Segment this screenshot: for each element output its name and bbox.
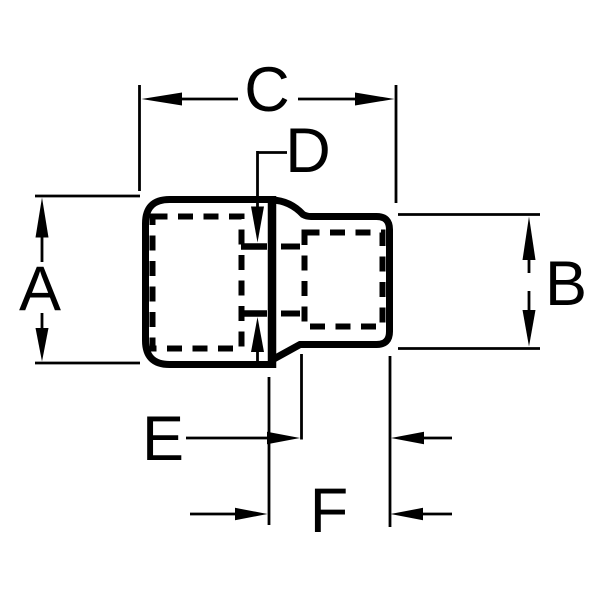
arrow-left-icon (391, 432, 424, 444)
arrow-down-icon (251, 207, 264, 243)
arrow-right-icon (355, 93, 395, 106)
large-end-outline (146, 200, 273, 365)
dimension-label-a: A (19, 254, 61, 324)
large-end-bore-dashed (153, 217, 242, 349)
arrow-up-icon (523, 217, 536, 261)
arrow-left-icon (391, 508, 424, 520)
arrow-down-icon (36, 328, 49, 362)
dimension-label-e: E (142, 404, 184, 474)
arrow-left-icon (142, 93, 183, 106)
arrow-down-icon (523, 310, 536, 347)
small-end-bore-dashed (305, 233, 383, 327)
socket-body (146, 196, 390, 368)
dimension-label-b: B (545, 249, 587, 319)
dimension-label-c: C (244, 55, 290, 125)
arrow-right-icon (235, 508, 268, 520)
dimension-f: F (190, 476, 452, 546)
arrow-up-icon (36, 198, 49, 238)
dimension-drawing: A B C D (0, 0, 600, 600)
dimension-e: E (142, 404, 452, 474)
dimension-label-f: F (310, 476, 348, 546)
dimension-a: A (19, 196, 140, 363)
arrow-right-icon (267, 432, 300, 444)
small-end-outline (271, 200, 390, 361)
dimension-b: B (398, 215, 587, 349)
diagram-canvas: A B C D (0, 0, 600, 600)
dimension-label-d: D (285, 116, 331, 186)
arrow-up-icon (251, 317, 264, 352)
dimension-c: C (140, 55, 397, 203)
hidden-bores (153, 217, 383, 349)
